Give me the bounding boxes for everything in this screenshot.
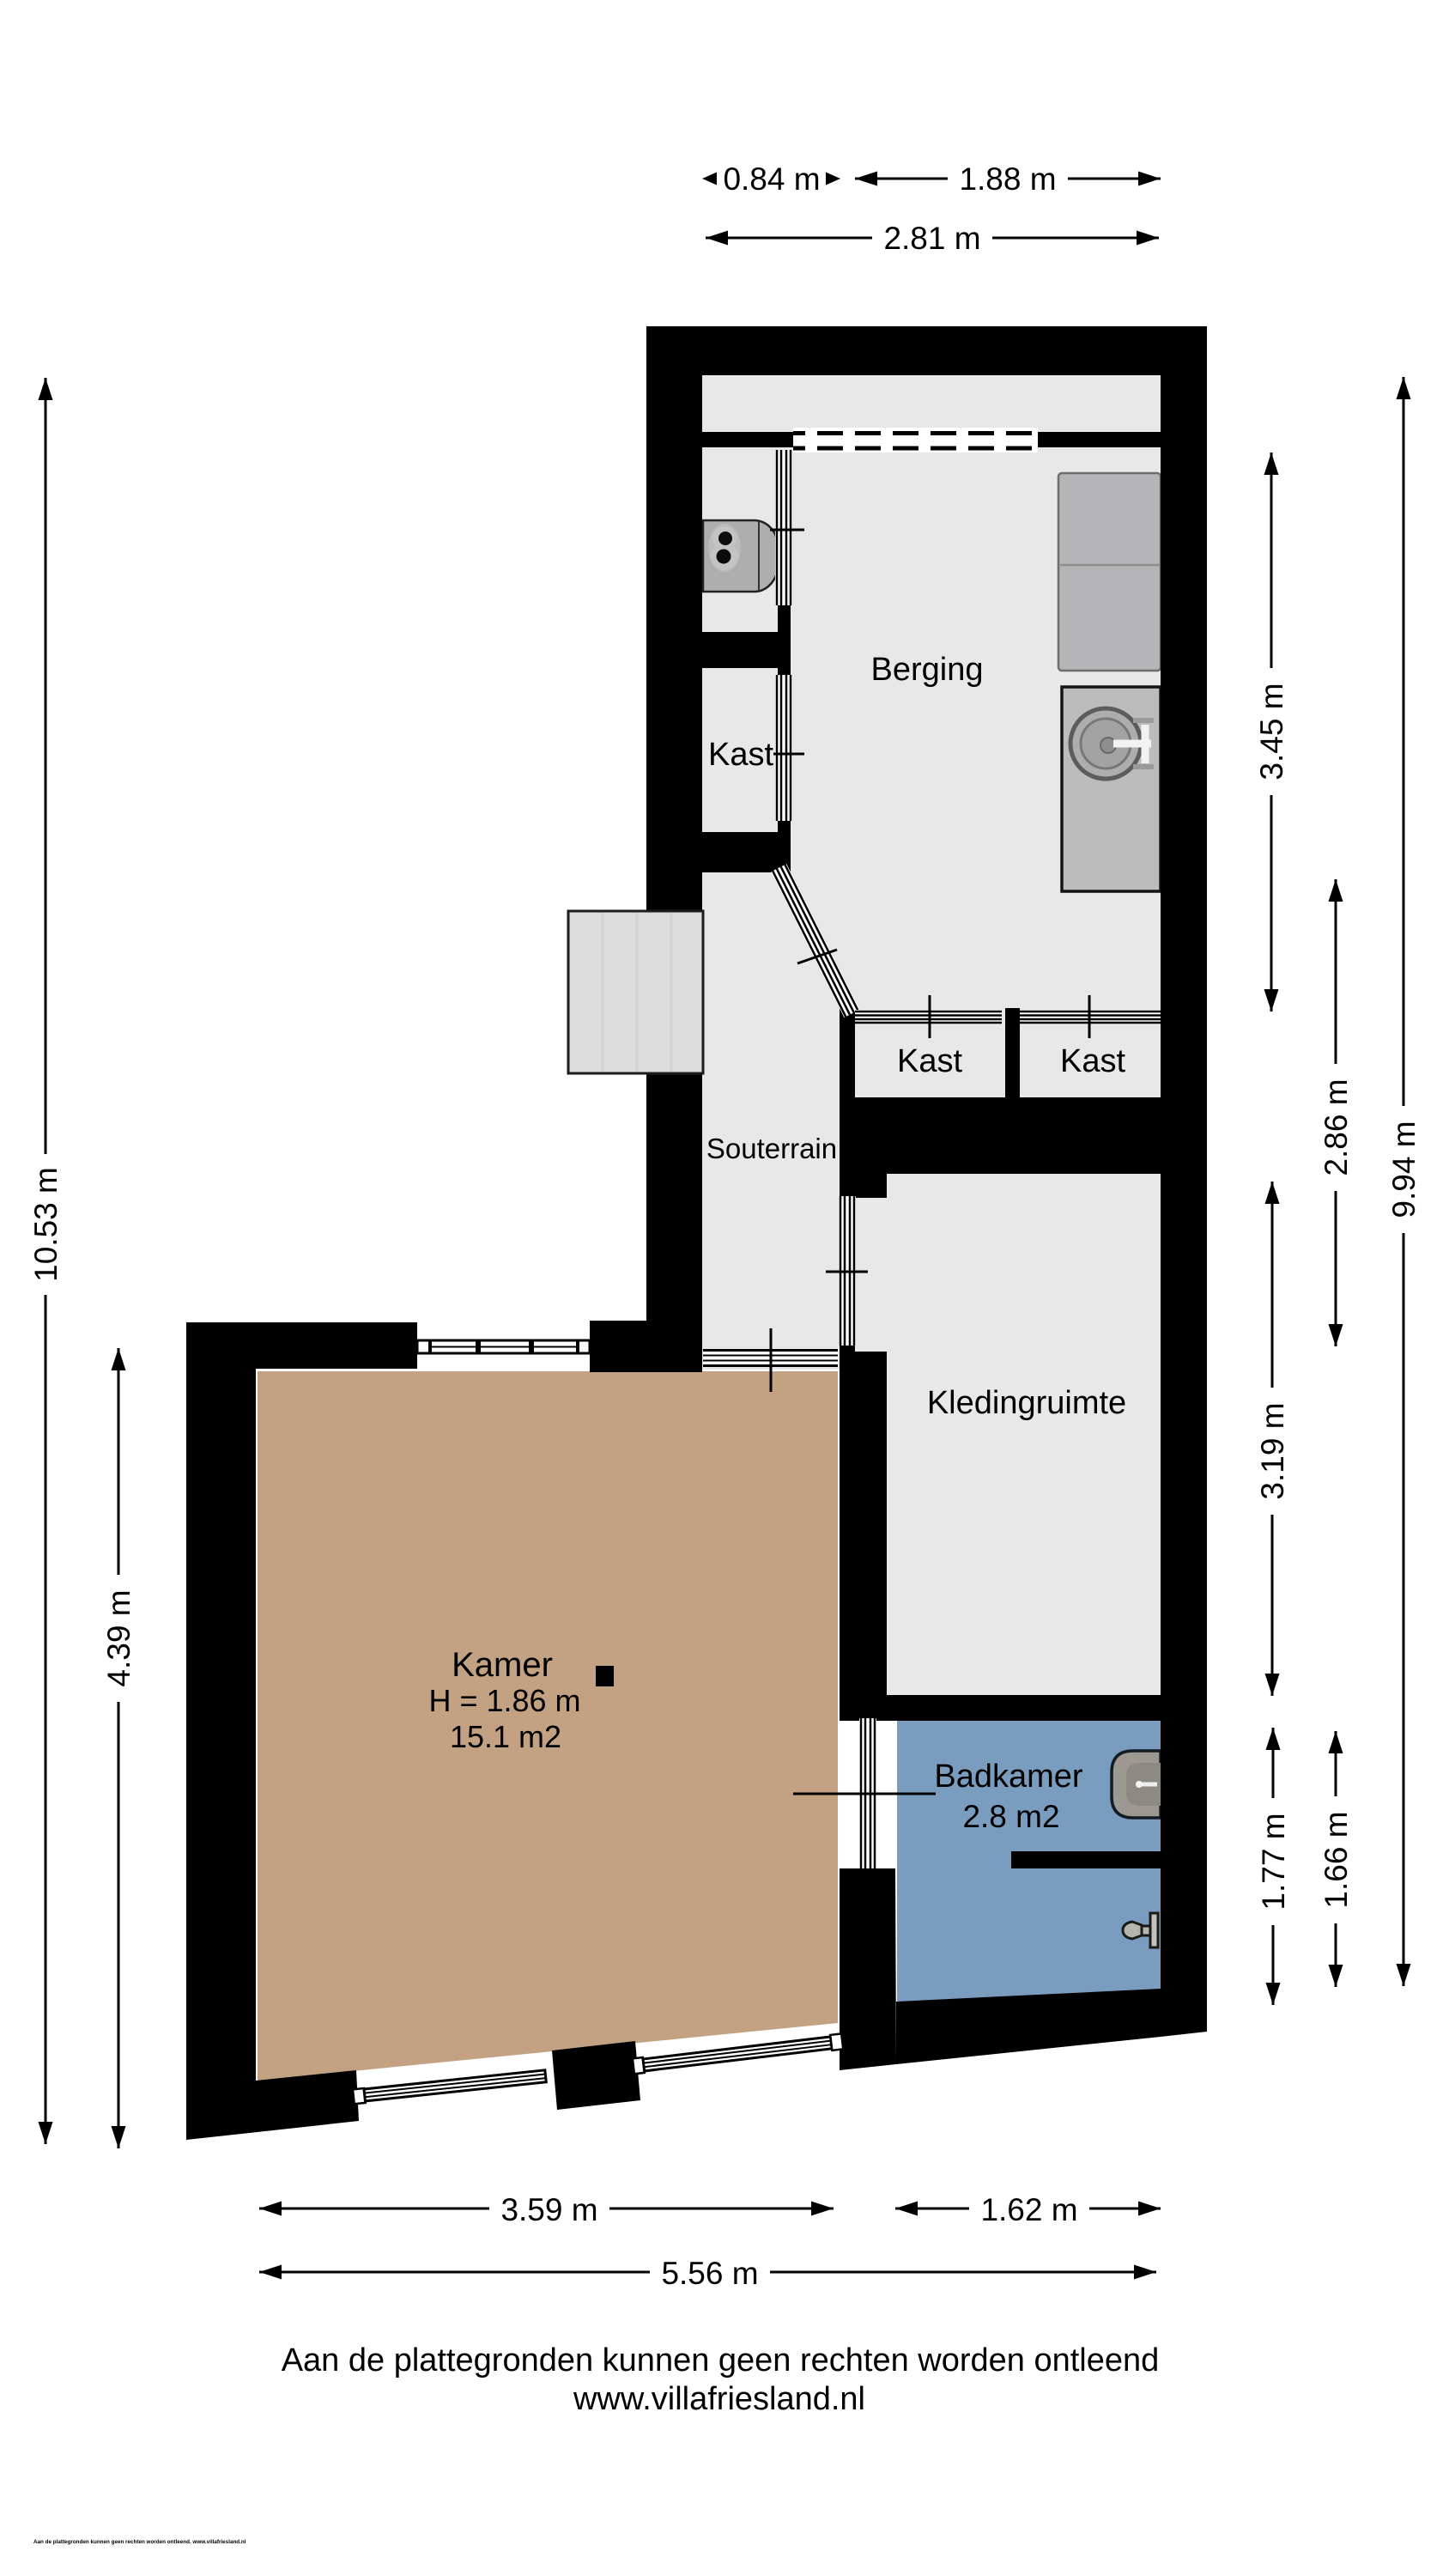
svg-text:10.53 m: 10.53 m bbox=[28, 1167, 64, 1282]
svg-text:Badkamer: Badkamer bbox=[934, 1759, 1083, 1795]
svg-text:4.39 m: 4.39 m bbox=[101, 1589, 136, 1686]
svg-text:5.56 m: 5.56 m bbox=[661, 2256, 758, 2291]
svg-text:1.66 m: 1.66 m bbox=[1319, 1811, 1354, 1908]
svg-text:Kast: Kast bbox=[708, 737, 773, 773]
svg-text:Kamer: Kamer bbox=[452, 1646, 553, 1684]
svg-text:Aan de plattegronden kunnen ge: Aan de plattegronden kunnen geen rechten… bbox=[33, 2539, 246, 2545]
svg-text:1.88 m: 1.88 m bbox=[959, 161, 1056, 197]
svg-text:2.86 m: 2.86 m bbox=[1319, 1078, 1354, 1176]
svg-text:1.62 m: 1.62 m bbox=[980, 2192, 1077, 2227]
svg-text:Berging: Berging bbox=[871, 652, 984, 688]
svg-text:2.81 m: 2.81 m bbox=[883, 221, 980, 256]
svg-text:9.94 m: 9.94 m bbox=[1386, 1121, 1422, 1218]
svg-text:2.8 m2: 2.8 m2 bbox=[962, 1799, 1059, 1834]
svg-text:Aan de plattegronden kunnen ge: Aan de plattegronden kunnen geen rechten… bbox=[282, 2342, 1160, 2379]
svg-text:3.59 m: 3.59 m bbox=[500, 2192, 597, 2227]
svg-text:www.villafriesland.nl: www.villafriesland.nl bbox=[573, 2381, 865, 2417]
svg-text:1.77 m: 1.77 m bbox=[1256, 1813, 1291, 1910]
svg-text:Kledingruimte: Kledingruimte bbox=[927, 1385, 1126, 1421]
svg-text:Kast: Kast bbox=[897, 1043, 962, 1079]
svg-text:15.1 m2: 15.1 m2 bbox=[450, 1719, 561, 1754]
svg-text:3.19 m: 3.19 m bbox=[1255, 1402, 1290, 1499]
svg-text:Souterrain: Souterrain bbox=[706, 1133, 837, 1164]
svg-text:0.84 m: 0.84 m bbox=[723, 161, 820, 197]
svg-text:Kast: Kast bbox=[1060, 1043, 1125, 1079]
svg-text:H = 1.86 m: H = 1.86 m bbox=[428, 1683, 580, 1718]
svg-text:3.45 m: 3.45 m bbox=[1254, 683, 1289, 780]
